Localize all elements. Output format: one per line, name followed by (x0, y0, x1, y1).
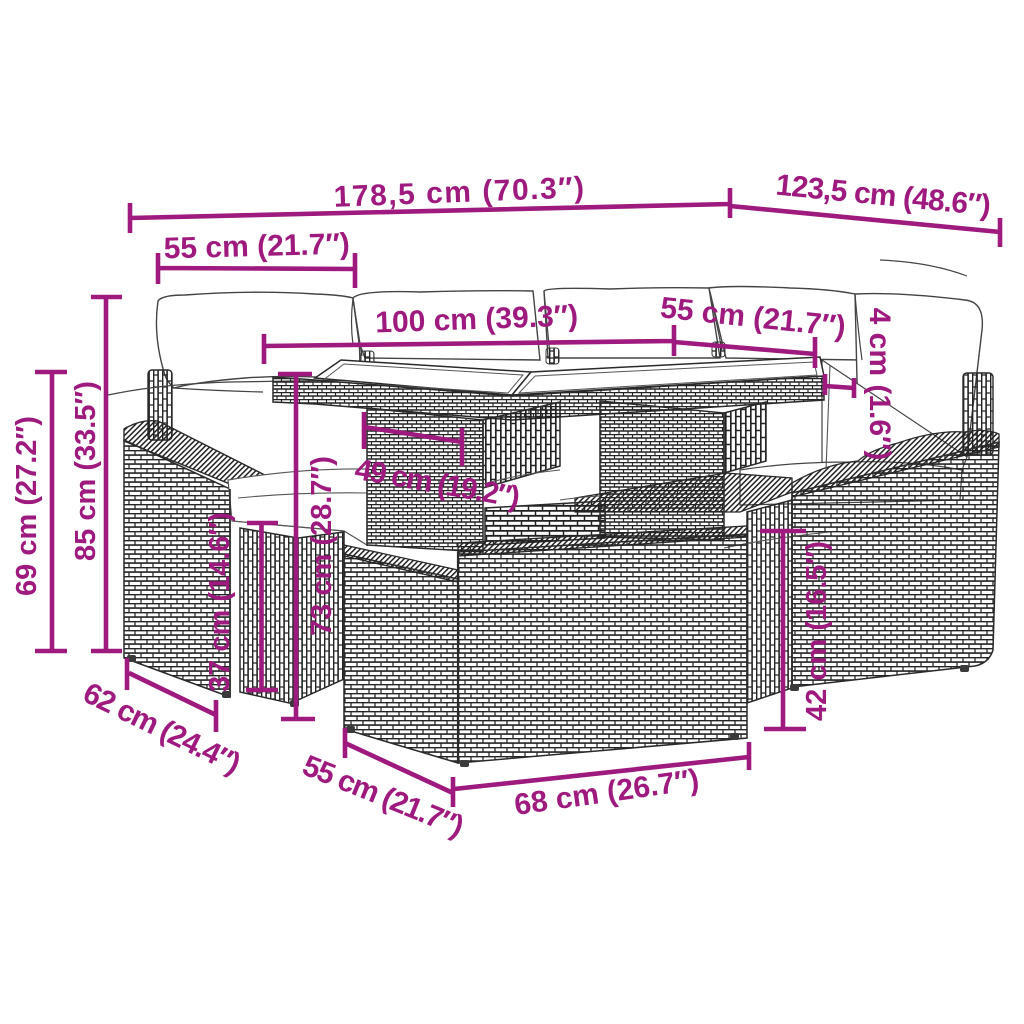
svg-text:73 cm (28.7″): 73 cm (28.7″) (306, 456, 338, 636)
svg-text:42 cm (16.5″): 42 cm (16.5″) (801, 541, 833, 721)
svg-text:37 cm (14.6″): 37 cm (14.6″) (204, 512, 236, 692)
svg-text:4 cm (1.6″): 4 cm (1.6″) (863, 308, 896, 461)
svg-text:85 cm (33.5″): 85 cm (33.5″) (70, 381, 102, 561)
svg-text:55 cm (21.7″): 55 cm (21.7″) (163, 228, 350, 266)
svg-text:69 cm (27.2″): 69 cm (27.2″) (11, 416, 43, 596)
